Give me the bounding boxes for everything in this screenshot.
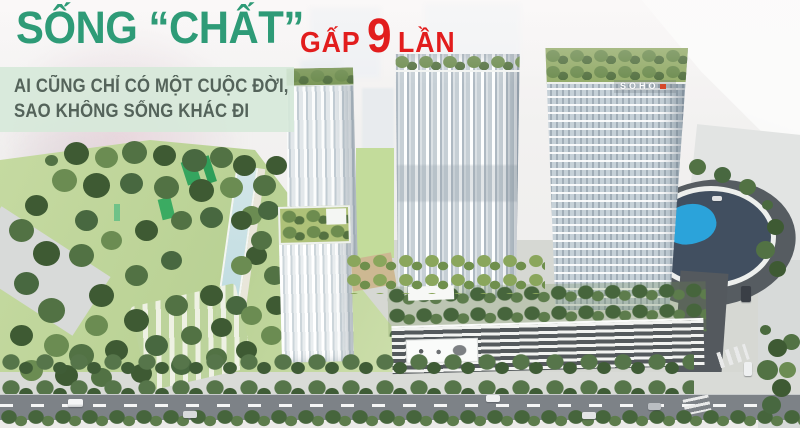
pond-side-trees (762, 200, 773, 210)
headline-sub-prefix: GẤP (300, 27, 361, 60)
car (582, 412, 596, 419)
headline-main: SỐNG “CHẤT” (16, 5, 304, 50)
rooftop-garden (544, 48, 688, 84)
rooftop-garden (284, 67, 354, 86)
headline-sub-number: 9 (367, 13, 392, 61)
tagline-line1: AI CŨNG CHỈ CÓ MỘT CUỘC ĐỜI, (14, 74, 260, 99)
ad-poster: SOHO SỐNG “CHẤT” GẤP 9 LẦN AI CŨNG CHỈ C… (0, 0, 800, 428)
car (68, 399, 83, 407)
street-trees-south (0, 408, 800, 428)
car (648, 403, 661, 410)
median-trees (760, 325, 771, 335)
soho-sign: SOHO (620, 81, 666, 91)
car (486, 395, 500, 402)
sports-lawn (114, 204, 120, 221)
car (744, 362, 752, 376)
courtyard-palms (345, 252, 545, 294)
headline-sub-suffix: LẦN (398, 27, 456, 60)
tagline-box: AI CŨNG CHỈ CÓ MỘT CUỘC ĐỜI, SAO KHÔNG S… (0, 67, 294, 132)
tagline-line2: SAO KHÔNG SỐNG KHÁC ĐI (14, 99, 260, 124)
rooftop-panel (326, 208, 346, 225)
van (741, 286, 751, 302)
car (183, 411, 197, 418)
lane-dashes (0, 404, 760, 407)
headline-sub: GẤP 9 LẦN (300, 13, 456, 61)
street-trees-north (0, 352, 694, 394)
tower-left-front (278, 205, 354, 363)
soho-sign-text: SOHO (620, 81, 659, 91)
park-trees (45, 155, 58, 166)
soho-sign-mark (660, 84, 666, 89)
tower-soho: SOHO (544, 48, 688, 310)
car (712, 196, 722, 201)
lawn-patch (356, 148, 394, 258)
